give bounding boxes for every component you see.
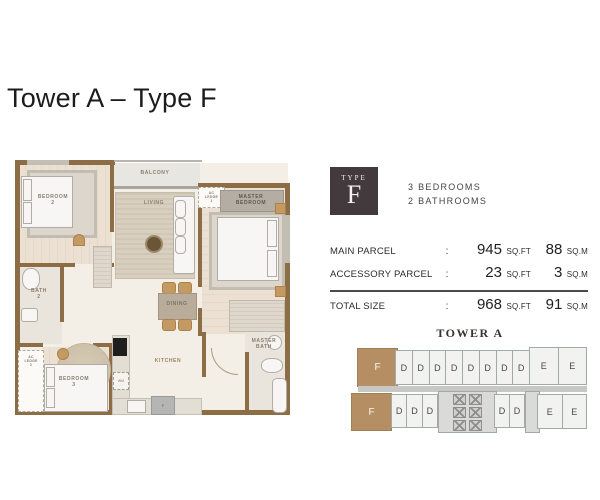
size-row-label: TOTAL SIZE — [330, 301, 442, 312]
sqft-unit: SQ.FT — [506, 302, 531, 311]
sqm-value: 88 — [546, 241, 563, 258]
elevator-icon — [469, 394, 482, 405]
masterbath-tub — [272, 378, 287, 413]
tower-bottom-d-strip-right: D D — [495, 394, 525, 428]
floorplan-page: Tower A – Type F — [0, 0, 600, 500]
master-pillow-2 — [267, 250, 277, 277]
tower-unit-cell: D — [422, 394, 438, 428]
sqft-unit: SQ.FT — [506, 270, 531, 279]
fridge: F — [151, 396, 175, 415]
bedroom2-wardrobe — [93, 246, 112, 288]
elevator-icon — [453, 394, 466, 405]
balcony-railing — [110, 160, 202, 162]
sqm-unit: SQ.M — [567, 270, 588, 279]
tower-unit-cell: D — [494, 394, 510, 428]
master-window — [285, 215, 290, 263]
colon: : — [442, 246, 452, 257]
kitchen-sink — [127, 400, 146, 413]
tower-unit-cell: D — [391, 394, 407, 428]
bedroom3-stool — [57, 348, 69, 360]
total-separator — [330, 290, 588, 292]
sqft-unit: SQ.FT — [506, 247, 531, 256]
bedroom2-label: BEDROOM 2 — [25, 194, 81, 206]
master-bath-label: MASTER BATH — [247, 338, 281, 350]
type-badge: TYPE F — [330, 167, 378, 215]
tower-unit-cell: E — [529, 347, 559, 385]
tower-bottom-e-strip: E E — [538, 394, 587, 429]
tower-title: TOWER A — [348, 326, 592, 341]
type-badge-letter: F — [347, 182, 361, 208]
cooktop — [113, 338, 127, 356]
tower-unit-f-bottom: F — [351, 393, 392, 431]
bedroom2-window — [27, 160, 69, 165]
size-row-label: MAIN PARCEL — [330, 246, 442, 257]
bedroom3-pillow-2 — [46, 388, 55, 408]
floorplan-drawing: AC LEDGE 1 AC LEDGE 2 — [15, 160, 307, 422]
sqft-value: 23 — [485, 264, 502, 281]
tower-bottom-d-strip-left: D D D — [392, 394, 438, 428]
colon: : — [442, 269, 452, 280]
tower-unit-cell: D — [406, 394, 422, 428]
sqm-unit: SQ.M — [567, 302, 588, 311]
master-pillow-1 — [267, 220, 277, 247]
kitchen-label: KITCHEN — [140, 358, 196, 364]
sqm-value: 3 — [554, 264, 562, 281]
tower-core — [438, 391, 497, 433]
bedroom3-label: BEDROOM 3 — [45, 376, 103, 388]
sqm-unit: SQ.M — [567, 247, 588, 256]
elevator-icon — [469, 407, 482, 418]
wall-bedroom3-top-a — [15, 343, 43, 347]
wall-bath2-right — [60, 267, 64, 322]
master-bedroom-label: MASTER BEDROOM — [221, 194, 281, 206]
size-row-accessory: ACCESSORY PARCEL : 23 SQ.FT 3 SQ.M — [330, 264, 588, 287]
bedroom2-stool — [73, 234, 85, 246]
washing-machine: WM — [113, 372, 129, 390]
ac-ledge-2-box: AC LEDGE 2 — [18, 350, 44, 412]
sqft-value: 968 — [477, 296, 502, 313]
size-table: MAIN PARCEL : 945 SQ.FT 88 SQ.M ACCESSOR… — [330, 241, 588, 319]
sofa-cushion-3 — [175, 236, 186, 254]
bedrooms-count: 3 BEDROOMS — [408, 180, 487, 194]
dining-chair-3 — [162, 319, 176, 331]
elevator-bank-right — [469, 394, 482, 431]
tower-unit-cell: D — [412, 350, 430, 385]
bathrooms-count: 2 BATHROOMS — [408, 194, 487, 208]
tower-unit-cell: D — [512, 350, 530, 385]
wall-masterbath-left — [245, 352, 249, 412]
tower-unit-f-top: F — [357, 348, 398, 387]
dining-label: DINING — [159, 301, 195, 307]
page-title: Tower A – Type F — [7, 83, 217, 114]
balcony-label: BALCONY — [110, 170, 200, 176]
masterbath-toilet — [261, 358, 283, 373]
size-row-main: MAIN PARCEL : 945 SQ.FT 88 SQ.M — [330, 241, 588, 264]
tower-top-d-strip: D D D D D D D D — [396, 350, 530, 385]
wall-bedroom2-bottom-a — [15, 263, 75, 267]
colon: : — [442, 301, 452, 312]
tower-unit-cell: E — [537, 394, 563, 429]
bath2-sink — [21, 308, 38, 322]
tower-unit-cell: E — [562, 394, 588, 429]
tower-unit-cell: E — [558, 347, 588, 385]
bath2-toilet — [22, 268, 40, 290]
living-label: LIVING — [125, 200, 183, 206]
bath2-label: BATH 2 — [21, 288, 57, 300]
dining-chair-4 — [178, 319, 192, 331]
sofa-cushion-2 — [175, 218, 186, 236]
elevator-bank-left — [453, 394, 466, 431]
master-wardrobe-bottom — [229, 300, 285, 332]
tower-unit-cell: D — [496, 350, 514, 385]
balcony-door-wall — [110, 186, 202, 189]
size-row-total: TOTAL SIZE : 968 SQ.FT 91 SQ.M — [330, 296, 588, 319]
unit-specs: 3 BEDROOMS 2 BATHROOMS — [408, 180, 487, 208]
tower-unit-cell: D — [445, 350, 463, 385]
elevator-icon — [453, 407, 466, 418]
wall-corridor — [202, 332, 206, 377]
sqm-value: 91 — [546, 296, 563, 313]
tower-unit-cell: D — [479, 350, 497, 385]
sqft-value: 945 — [477, 241, 502, 258]
tower-unit-cell: D — [429, 350, 447, 385]
ac-ledge-2-label: AC LEDGE 2 — [19, 355, 43, 367]
elevator-icon — [453, 420, 466, 431]
master-nightstand-2 — [275, 286, 286, 297]
tower-top-e-strip: E E — [530, 347, 587, 385]
tower-keyplan: TOWER A F D D D D D D D D E E F D D D — [348, 326, 592, 430]
tower-unit-cell: D — [462, 350, 480, 385]
tower-unit-cell: D — [395, 350, 413, 385]
coffee-table — [145, 235, 163, 253]
tower-unit-cell: D — [509, 394, 525, 428]
elevator-icon — [469, 420, 482, 431]
size-row-label: ACCESSORY PARCEL — [330, 269, 442, 280]
